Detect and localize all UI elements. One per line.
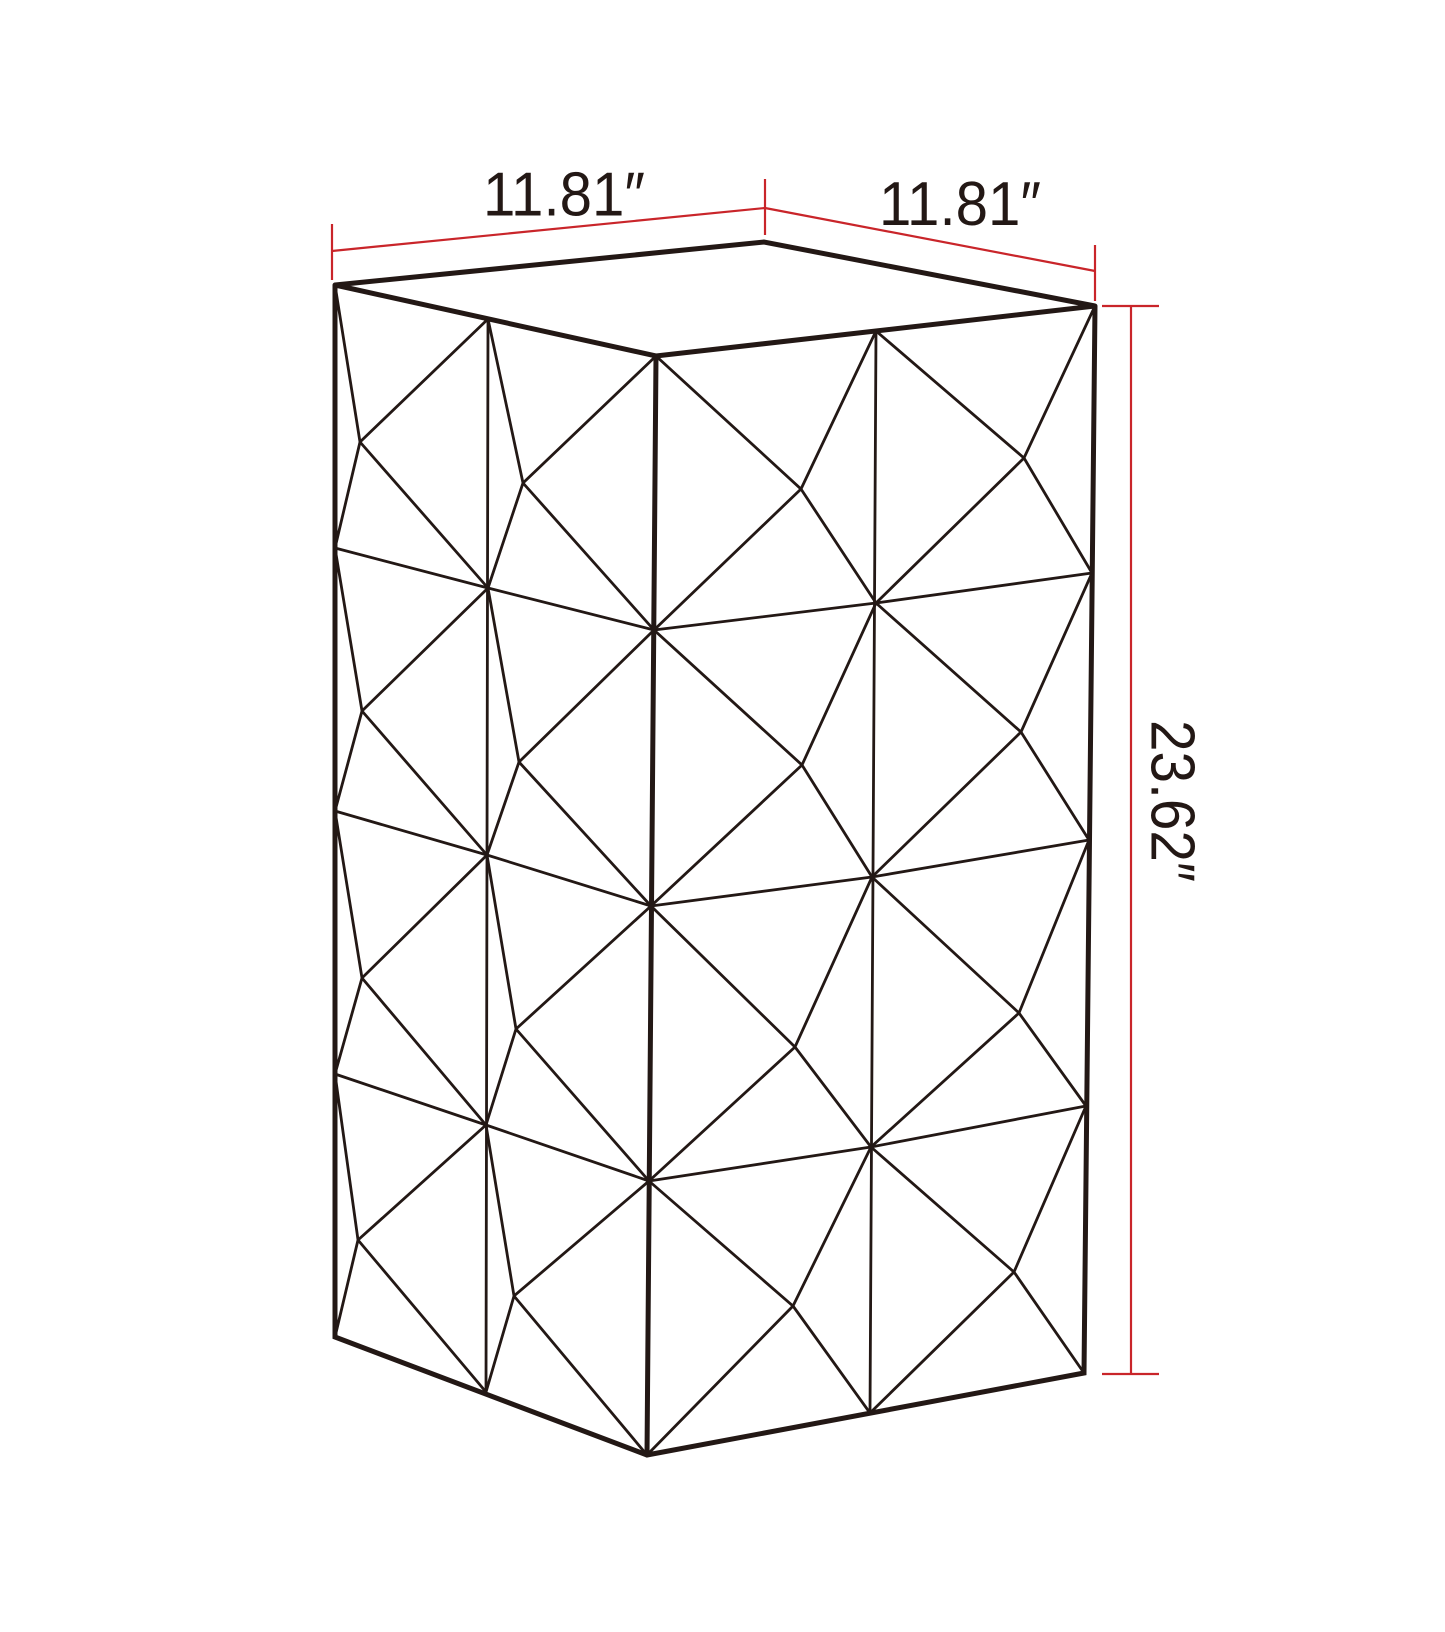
- svg-text:23.62″: 23.62″: [1138, 720, 1207, 882]
- svg-text:11.81″: 11.81″: [879, 170, 1041, 239]
- svg-text:11.81″: 11.81″: [483, 161, 645, 230]
